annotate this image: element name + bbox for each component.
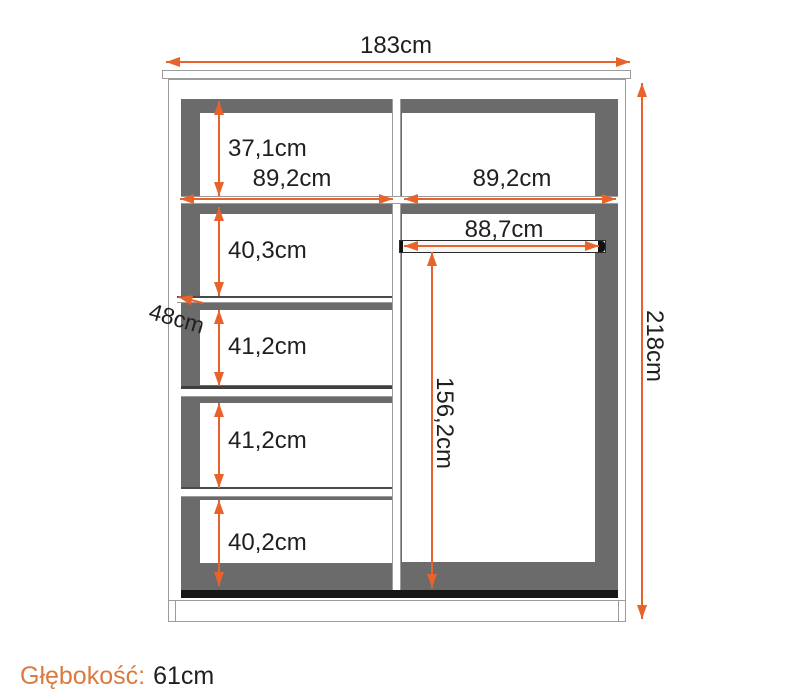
rail-end-cap-right	[598, 241, 605, 252]
depth-caption: Głębokość:61cm	[20, 662, 214, 691]
dim-label-section-5: 40,2cm	[228, 530, 307, 555]
dim-label-section-2: 40,3cm	[228, 238, 307, 263]
rail-end-cap-left	[400, 241, 403, 252]
center-divider-panel	[392, 99, 401, 590]
dim-label-rail-width: 88,7cm	[444, 217, 564, 242]
cabinet-top-panel	[162, 70, 631, 79]
wardrobe-dimension-diagram: 183cm 89,2cm 89,2cm 88,7cm 37,1cm 40,3cm…	[0, 0, 795, 699]
dim-arrow-rail-width	[404, 245, 599, 247]
dim-arrow-section-3	[218, 310, 220, 386]
dim-arrow-overall-width	[166, 61, 630, 63]
dim-arrow-section-5	[218, 500, 220, 586]
shelf-left-4	[181, 487, 392, 497]
plinth-top-edge	[169, 600, 625, 601]
dim-arrow-section-2	[218, 207, 220, 296]
plinth-tick-right	[618, 600, 619, 622]
dim-label-overall-height: 218cm	[642, 310, 667, 382]
dim-arrow-section-1	[218, 101, 220, 196]
dim-label-section-1: 37,1cm	[228, 136, 307, 161]
base-strip	[181, 590, 618, 598]
dim-label-right-column-width: 89,2cm	[452, 166, 572, 191]
dim-label-section-3: 41,2cm	[228, 334, 307, 359]
dim-label-section-4: 41,2cm	[228, 428, 307, 453]
shelf-left-3	[181, 386, 392, 397]
depth-caption-label: Głębokość:	[20, 662, 145, 690]
dim-label-left-column-width: 89,2cm	[232, 166, 352, 191]
dim-arrow-section-4	[218, 403, 220, 488]
dim-label-hanging-height: 156,2cm	[432, 377, 457, 469]
dim-arrow-left-column-width	[180, 198, 393, 200]
dim-arrow-right-column-width	[404, 198, 616, 200]
depth-caption-value: 61cm	[153, 662, 214, 690]
plinth-tick-left	[175, 600, 176, 622]
shelf-left-2	[177, 296, 392, 303]
dim-label-overall-width: 183cm	[340, 33, 452, 58]
